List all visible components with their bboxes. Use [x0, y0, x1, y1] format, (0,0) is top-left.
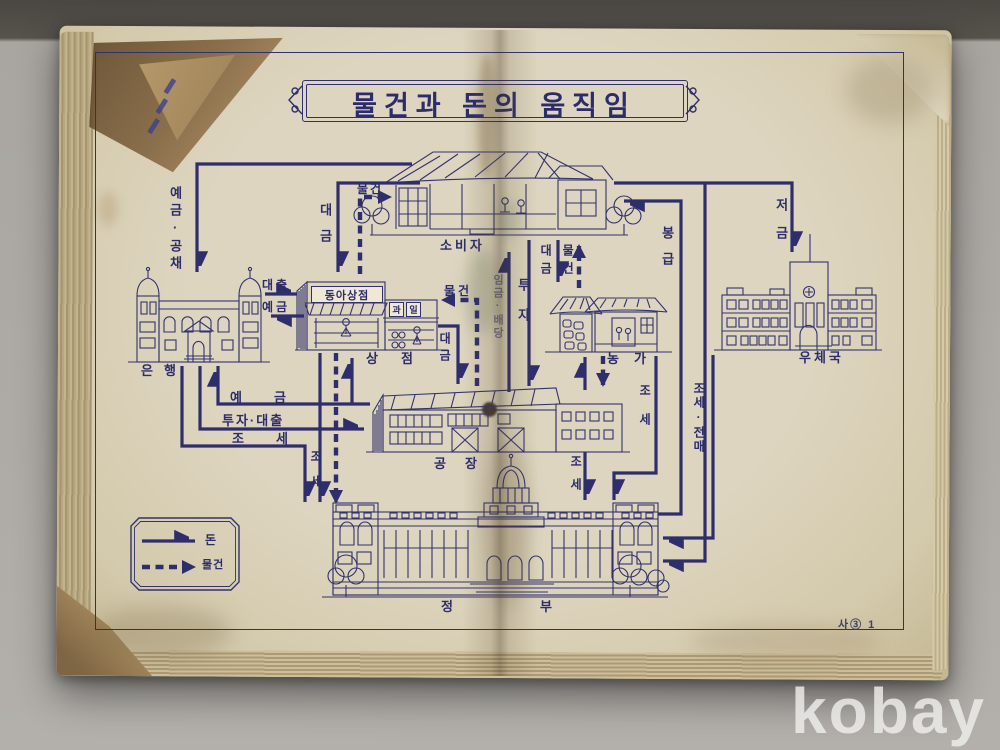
legend-box [131, 518, 239, 590]
label-investment-loan: 투자·대출 [222, 414, 284, 428]
label-payment-consumer-farm: 대금 [539, 244, 552, 280]
label-consumer: 소비자 [440, 239, 485, 253]
label-salary: 봉급 [660, 226, 674, 278]
label-store: 상점 [366, 352, 436, 366]
page-number: 사③ 1 [838, 616, 876, 632]
label-goods-factory-store: 물건 [444, 285, 472, 298]
store-sign: 동아상점 [311, 286, 383, 303]
factory-building-drawing [366, 388, 630, 452]
label-tax-bank: 조세 [232, 432, 320, 446]
label-deposit-factory-bank: 예금 [230, 391, 318, 405]
government-building-drawing [322, 454, 669, 597]
photo-of-open-book: 물건과 돈의 움직임 동아상점 과 일 소비자 은행 상점 농가 우체국 공장 … [0, 0, 1000, 750]
label-farm: 농가 [607, 352, 661, 366]
label-wages-dividends: 임금·배당 [491, 274, 503, 340]
bank-building-drawing [128, 267, 270, 362]
label-goods-farm-consumer: 물건 [561, 244, 574, 280]
page-title: 물건과 돈의 움직임 [302, 84, 686, 123]
legend-money-label: 돈 [205, 534, 216, 547]
label-tax-factory: 조세 [569, 455, 582, 501]
label-payment-consumer-store: 대금 [318, 203, 332, 255]
label-government-1: 정 [441, 600, 453, 614]
label-loan: 대출 [262, 279, 290, 292]
label-payment-store-factory: 대금 [438, 332, 451, 366]
label-deposits-bonds: 예금·공채 [168, 186, 182, 273]
flow-deposits-bonds [197, 164, 412, 272]
label-factory: 공장 [434, 457, 496, 471]
label-investment: 투자 [516, 278, 530, 338]
label-post-office: 우체국 [799, 351, 844, 365]
post-office-building-drawing [714, 234, 882, 350]
label-deposit-store-bank: 예금 [262, 301, 290, 314]
fruit-sign-2: 일 [406, 302, 421, 317]
legend-goods-label: 물건 [202, 560, 224, 572]
label-bank: 은행 [141, 364, 187, 378]
fruit-sign-1: 과 [389, 302, 404, 317]
label-government-2: 부 [540, 600, 552, 614]
label-tax-bank-down: 조세 [309, 450, 322, 500]
label-tax-farm: 조세 [638, 384, 651, 442]
label-goods-store-consumer: 물건 [357, 183, 383, 196]
kobay-watermark: kobay [791, 674, 986, 748]
label-tax-monopoly: 조세·전매 [692, 382, 705, 454]
farm-house-drawing [545, 297, 672, 352]
label-savings: 저금 [774, 198, 788, 254]
